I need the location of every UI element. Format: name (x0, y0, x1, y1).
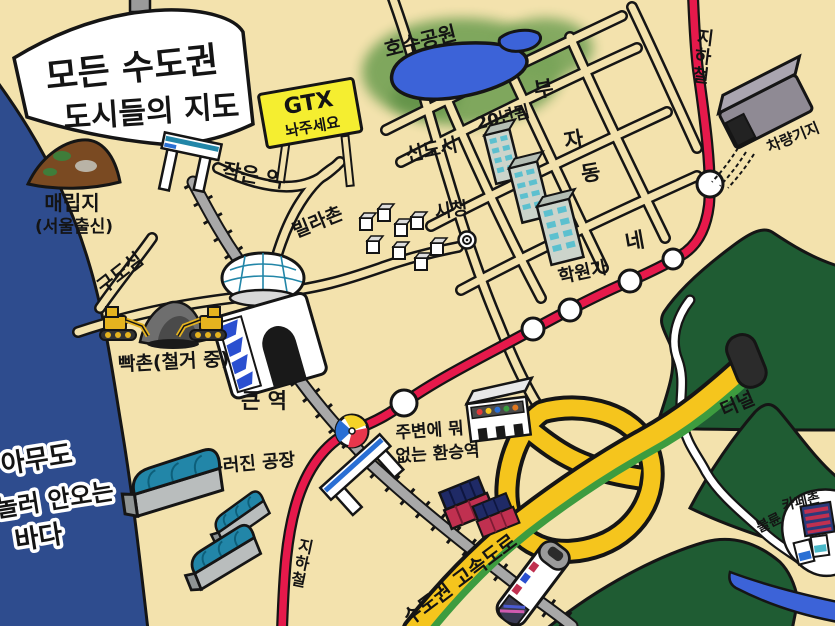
station-dot (663, 249, 683, 269)
label-rich-3: 동 (579, 160, 602, 187)
cafe-card (811, 535, 830, 557)
label-rich-1: 부 (532, 76, 555, 103)
label-landfill-sub: (서울출신) (35, 217, 113, 237)
station-dot (559, 299, 581, 321)
station-dot (522, 318, 544, 340)
transfer-ball-icon (336, 415, 368, 447)
map-canvas: 수도권 고속도로 터널 차량기지 지하철 매립지 (서울출신) (0, 0, 835, 626)
label-landfill: 매립지 (44, 191, 99, 215)
label-big-station: 큰 역 (241, 389, 287, 413)
station-dot (391, 390, 417, 416)
city-hall-target-icon (459, 232, 476, 249)
station-dot (619, 270, 641, 292)
station-dot (697, 171, 723, 197)
label-rich-4: 네 (623, 228, 646, 255)
